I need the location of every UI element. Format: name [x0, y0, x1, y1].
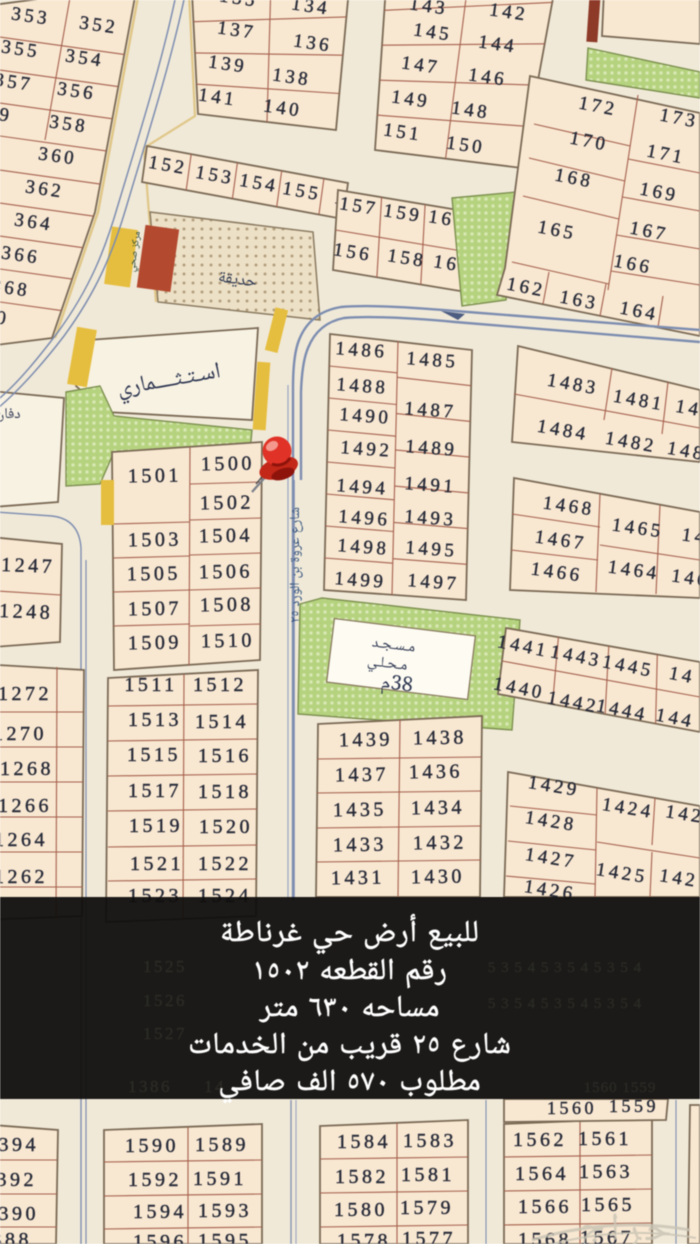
svg-text:1270: 1270 [0, 723, 47, 745]
svg-text:1499: 1499 [334, 568, 387, 593]
svg-text:1489: 1489 [405, 436, 458, 461]
svg-text:1432: 1432 [413, 832, 467, 855]
svg-text:1512: 1512 [193, 674, 247, 696]
svg-text:1439: 1439 [339, 729, 393, 752]
svg-text:1579: 1579 [400, 1197, 454, 1219]
svg-text:1526: 1526 [143, 991, 187, 1010]
svg-text:1589: 1589 [195, 1134, 249, 1156]
svg-text:1518: 1518 [198, 781, 252, 803]
svg-text:1508: 1508 [200, 594, 254, 617]
svg-text:1511: 1511 [124, 674, 177, 696]
svg-text:357: 357 [0, 69, 35, 95]
svg-text:1386: 1386 [128, 1077, 172, 1096]
svg-text:1262: 1262 [0, 866, 48, 888]
svg-text:1437: 1437 [335, 764, 389, 787]
svg-text:1501: 1501 [128, 465, 182, 488]
svg-text:1509: 1509 [128, 632, 182, 655]
svg-text:1506: 1506 [199, 561, 253, 584]
svg-text:1520: 1520 [199, 816, 253, 838]
svg-text:1488: 1488 [336, 374, 389, 399]
svg-text:1490: 1490 [339, 404, 392, 429]
svg-text:1392: 1392 [0, 1169, 37, 1191]
svg-text:1430: 1430 [411, 866, 465, 889]
svg-text:1431: 1431 [331, 867, 385, 890]
svg-text:1590: 1590 [125, 1135, 179, 1157]
svg-text:1388: 1388 [0, 1229, 32, 1244]
svg-text:1390: 1390 [0, 1203, 39, 1225]
svg-text:1496: 1496 [338, 506, 391, 531]
svg-text:1507: 1507 [128, 598, 182, 621]
svg-text:1514: 1514 [195, 711, 249, 733]
svg-text:1485: 1485 [406, 348, 459, 373]
svg-text:1516: 1516 [198, 745, 252, 767]
svg-text:1513: 1513 [128, 709, 182, 731]
svg-text:1487: 1487 [404, 398, 457, 423]
svg-text:1592: 1592 [128, 1169, 182, 1191]
svg-text:1561: 1561 [578, 1128, 632, 1150]
svg-text:1591: 1591 [193, 1168, 247, 1190]
svg-text:1525: 1525 [143, 957, 187, 976]
svg-text:1521: 1521 [130, 853, 184, 875]
svg-text:1563: 1563 [579, 1161, 633, 1183]
svg-text:1582: 1582 [335, 1166, 389, 1188]
svg-text:1502: 1502 [200, 492, 254, 515]
svg-text:1519: 1519 [129, 815, 183, 837]
svg-text:1248: 1248 [0, 600, 54, 624]
svg-text:1564: 1564 [515, 1163, 569, 1185]
svg-text:1492: 1492 [340, 437, 393, 462]
svg-text:1583: 1583 [403, 1130, 457, 1152]
svg-text:1505: 1505 [127, 563, 181, 586]
svg-text:1436: 1436 [409, 761, 463, 784]
svg-text:1438: 1438 [413, 727, 467, 750]
svg-text:1560: 1560 [547, 1098, 597, 1118]
svg-text:1494: 1494 [336, 475, 389, 500]
svg-text:1394: 1394 [0, 1134, 39, 1156]
svg-text:1435: 1435 [333, 799, 387, 822]
svg-text:1577: 1577 [402, 1228, 456, 1244]
svg-text:1434: 1434 [411, 797, 465, 820]
svg-text:1272: 1272 [0, 683, 52, 705]
svg-text:1517: 1517 [128, 780, 182, 802]
svg-text:1560 1559: 1560 1559 [584, 1080, 657, 1096]
svg-text:1268: 1268 [0, 758, 54, 780]
svg-text:1595: 1595 [198, 1230, 252, 1244]
svg-text:1581: 1581 [401, 1164, 455, 1186]
svg-text:1566: 1566 [518, 1196, 572, 1218]
svg-text:1498: 1498 [337, 535, 390, 560]
svg-text:1247: 1247 [1, 554, 56, 578]
svg-text:1515: 1515 [127, 744, 181, 766]
svg-text:1580: 1580 [334, 1199, 388, 1221]
svg-text:5 3 5 4 5 3 5 4 5 3 5 4: 5 3 5 4 5 3 5 4 5 3 5 4 [488, 996, 642, 1012]
svg-text:1497: 1497 [407, 570, 460, 595]
svg-text:1584: 1584 [337, 1131, 391, 1153]
svg-text:1527: 1527 [143, 1024, 187, 1043]
svg-text:1493: 1493 [404, 506, 457, 531]
svg-text:1504: 1504 [199, 525, 253, 548]
svg-text:1264: 1264 [0, 829, 48, 851]
svg-text:5 3 5 4 5 3 5 4 5 3 5 4: 5 3 5 4 5 3 5 4 5 3 5 4 [488, 960, 642, 976]
svg-text:1562: 1562 [513, 1129, 567, 1151]
svg-text:368: 368 [0, 275, 32, 301]
svg-text:1433: 1433 [333, 834, 387, 857]
svg-text:1594: 1594 [133, 1201, 187, 1223]
svg-text:14: 14 [680, 524, 700, 548]
svg-text:1596: 1596 [133, 1231, 187, 1244]
svg-text:1486: 1486 [335, 338, 388, 363]
svg-text:1593: 1593 [198, 1200, 252, 1222]
svg-text:1500: 1500 [201, 453, 255, 476]
svg-text:1522: 1522 [198, 853, 252, 875]
svg-text:1503: 1503 [128, 529, 182, 552]
svg-text:1510: 1510 [201, 630, 255, 653]
svg-text:1266: 1266 [0, 795, 52, 817]
svg-text:1565: 1565 [581, 1194, 635, 1216]
svg-text:1495: 1495 [405, 537, 458, 562]
svg-text:1491: 1491 [404, 473, 457, 498]
svg-text:1578: 1578 [337, 1230, 391, 1244]
